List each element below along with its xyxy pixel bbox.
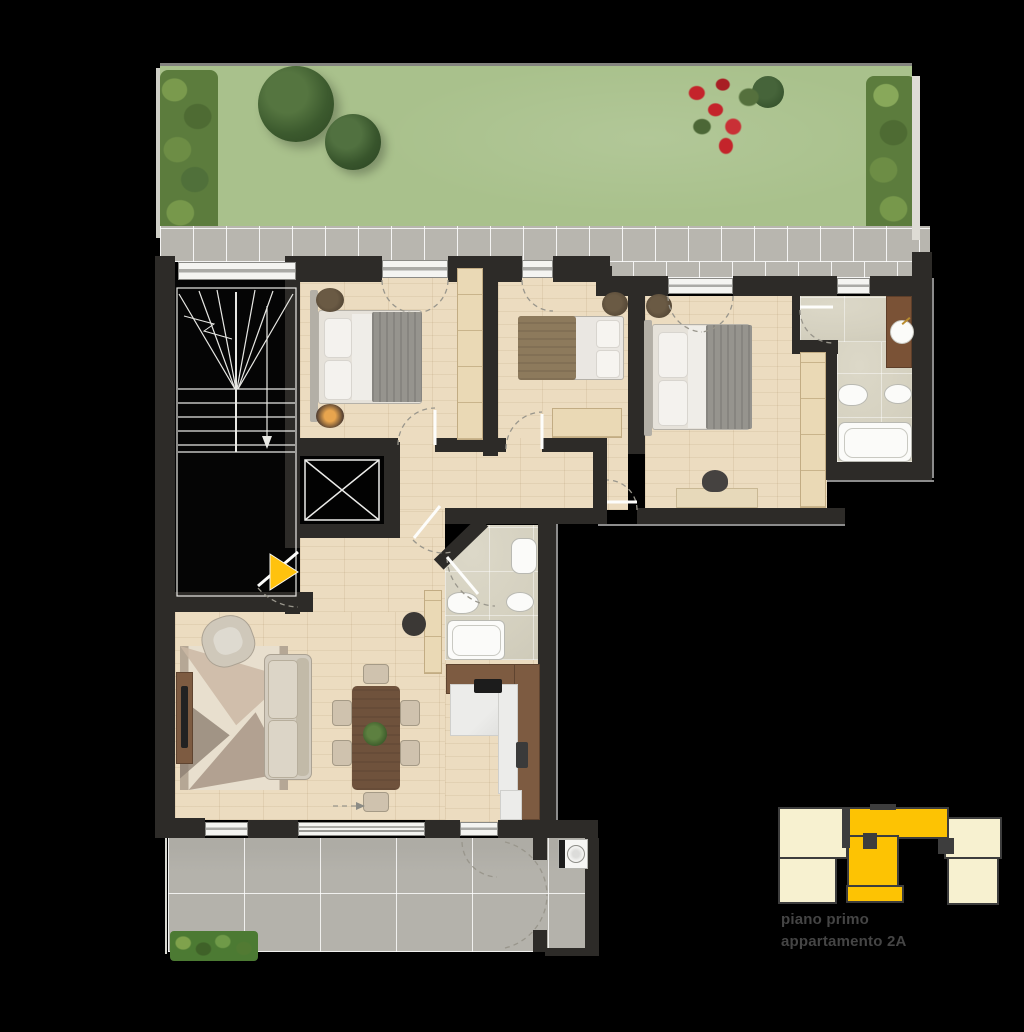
key-plan-wall-d — [870, 804, 896, 810]
key-plan-highlight-tab — [847, 886, 903, 902]
key-plan-wall-c — [938, 838, 954, 854]
key-plan-wall-b — [863, 833, 877, 849]
key-plan-unit-left-b — [779, 858, 836, 903]
elevator — [305, 460, 379, 520]
entrance-arrow — [270, 554, 298, 590]
caption-apartment: appartamento 2A — [781, 931, 907, 953]
key-plan-unit-left-a — [779, 808, 847, 858]
key-plan-caption: piano primo appartamento 2A — [781, 909, 907, 953]
door-swing-arcs — [258, 280, 833, 948]
staircase — [177, 288, 296, 596]
slider-arrow-head — [356, 802, 365, 810]
key-plan-wall-a — [842, 808, 850, 848]
key-plan-unit-right-b — [948, 858, 998, 904]
key-plan — [770, 796, 1010, 916]
apartment-floor-plan: piano primo appartamento 2A — [0, 0, 1024, 1032]
caption-floor: piano primo — [781, 909, 907, 931]
door-leaves — [258, 307, 833, 594]
